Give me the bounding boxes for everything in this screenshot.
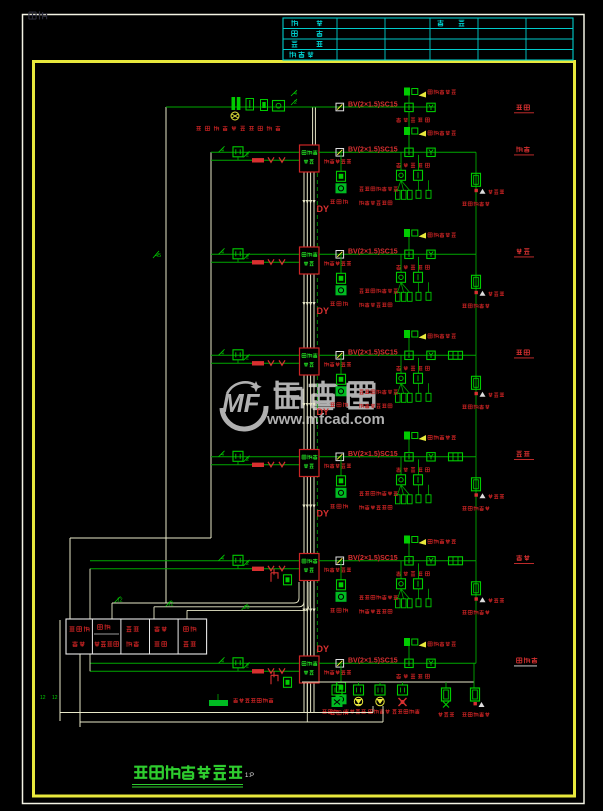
svg-text:45: 45 xyxy=(155,253,161,259)
svg-text:1:P: 1:P xyxy=(245,773,254,779)
svg-text:BV(2×1.5)SC15: BV(2×1.5)SC15 xyxy=(348,350,398,357)
svg-text:DY: DY xyxy=(317,644,330,654)
svg-text:12: 12 xyxy=(168,602,174,608)
svg-text:DY: DY xyxy=(317,509,330,519)
svg-text:MF: MF xyxy=(222,388,261,418)
svg-text:BV(2×1.5)SC15: BV(2×1.5)SC15 xyxy=(348,658,398,665)
svg-text:12: 12 xyxy=(40,695,46,701)
svg-text:DY: DY xyxy=(317,306,330,316)
svg-text:BV(2×1.5)SC15: BV(2×1.5)SC15 xyxy=(348,451,398,458)
svg-text:BV(2×1.5)SC15: BV(2×1.5)SC15 xyxy=(348,555,398,562)
svg-text:20: 20 xyxy=(244,605,250,611)
svg-text:BV(2×1.5)SC15: BV(2×1.5)SC15 xyxy=(348,101,398,108)
svg-text:BV(2×1.5)SC15: BV(2×1.5)SC15 xyxy=(348,249,398,256)
svg-text:BV(2×1.5)SC15: BV(2×1.5)SC15 xyxy=(348,147,398,154)
svg-text:12: 12 xyxy=(52,695,58,701)
svg-text:DY: DY xyxy=(317,204,330,214)
svg-text:12: 12 xyxy=(117,598,123,604)
svg-text:DY: DY xyxy=(317,407,330,417)
